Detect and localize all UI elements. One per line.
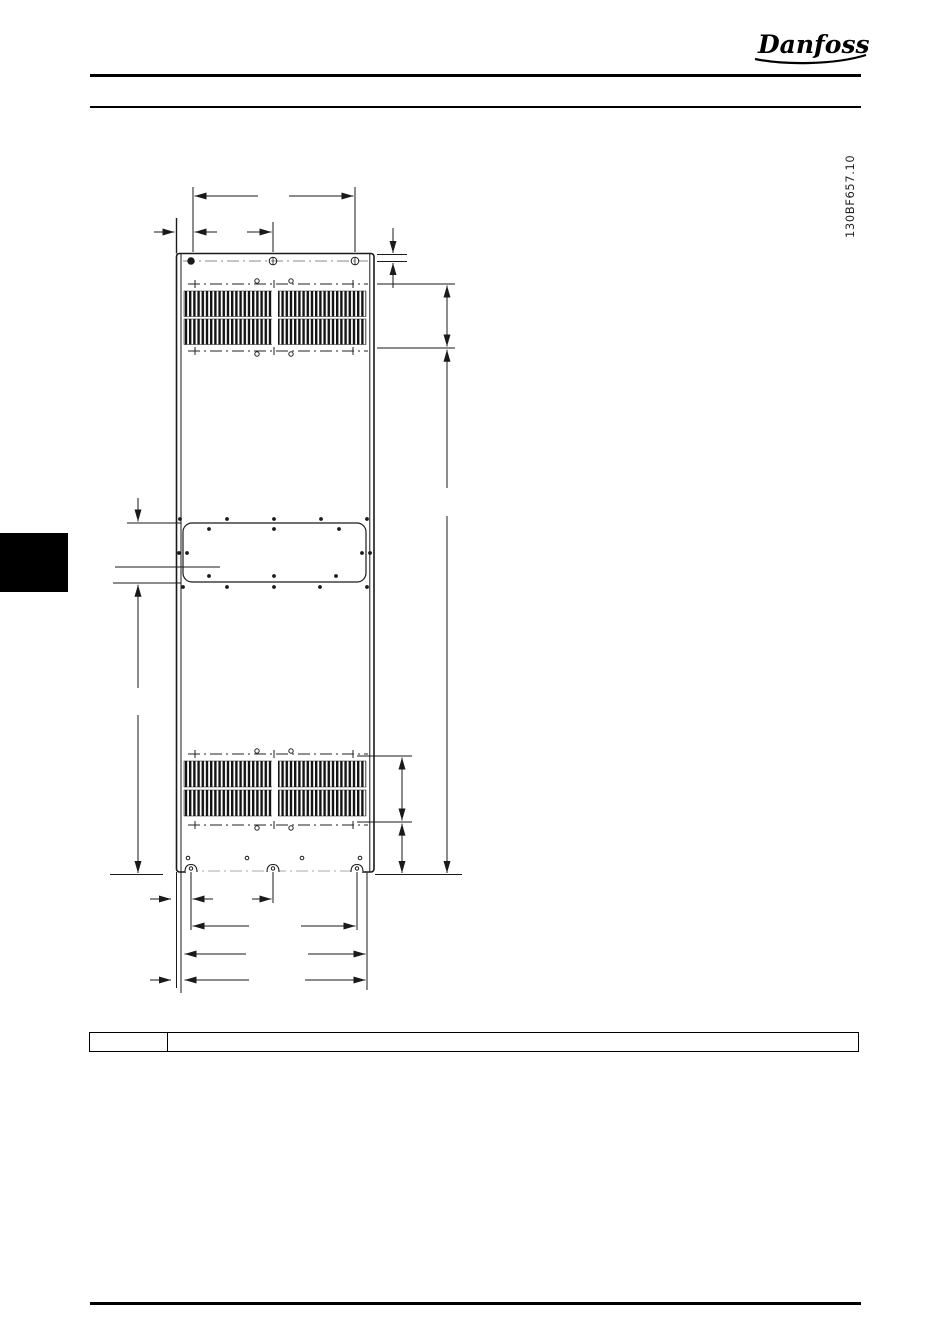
dimension-lines-top <box>154 187 355 252</box>
footnote-table-key-cell <box>90 1033 168 1051</box>
technical-drawing <box>0 0 950 1344</box>
footnote-table <box>89 1032 859 1052</box>
dimension-line-left <box>110 498 181 875</box>
gland-plate <box>115 517 372 589</box>
footer-rule <box>90 1302 861 1305</box>
footnote-table-value-cell <box>168 1033 858 1051</box>
top-vent-grille <box>184 279 368 356</box>
bottom-vent-grille <box>184 749 368 860</box>
mounting-keyholes <box>185 865 363 876</box>
dimension-lines-right <box>357 228 462 875</box>
dimension-lines-bottom <box>150 872 367 993</box>
